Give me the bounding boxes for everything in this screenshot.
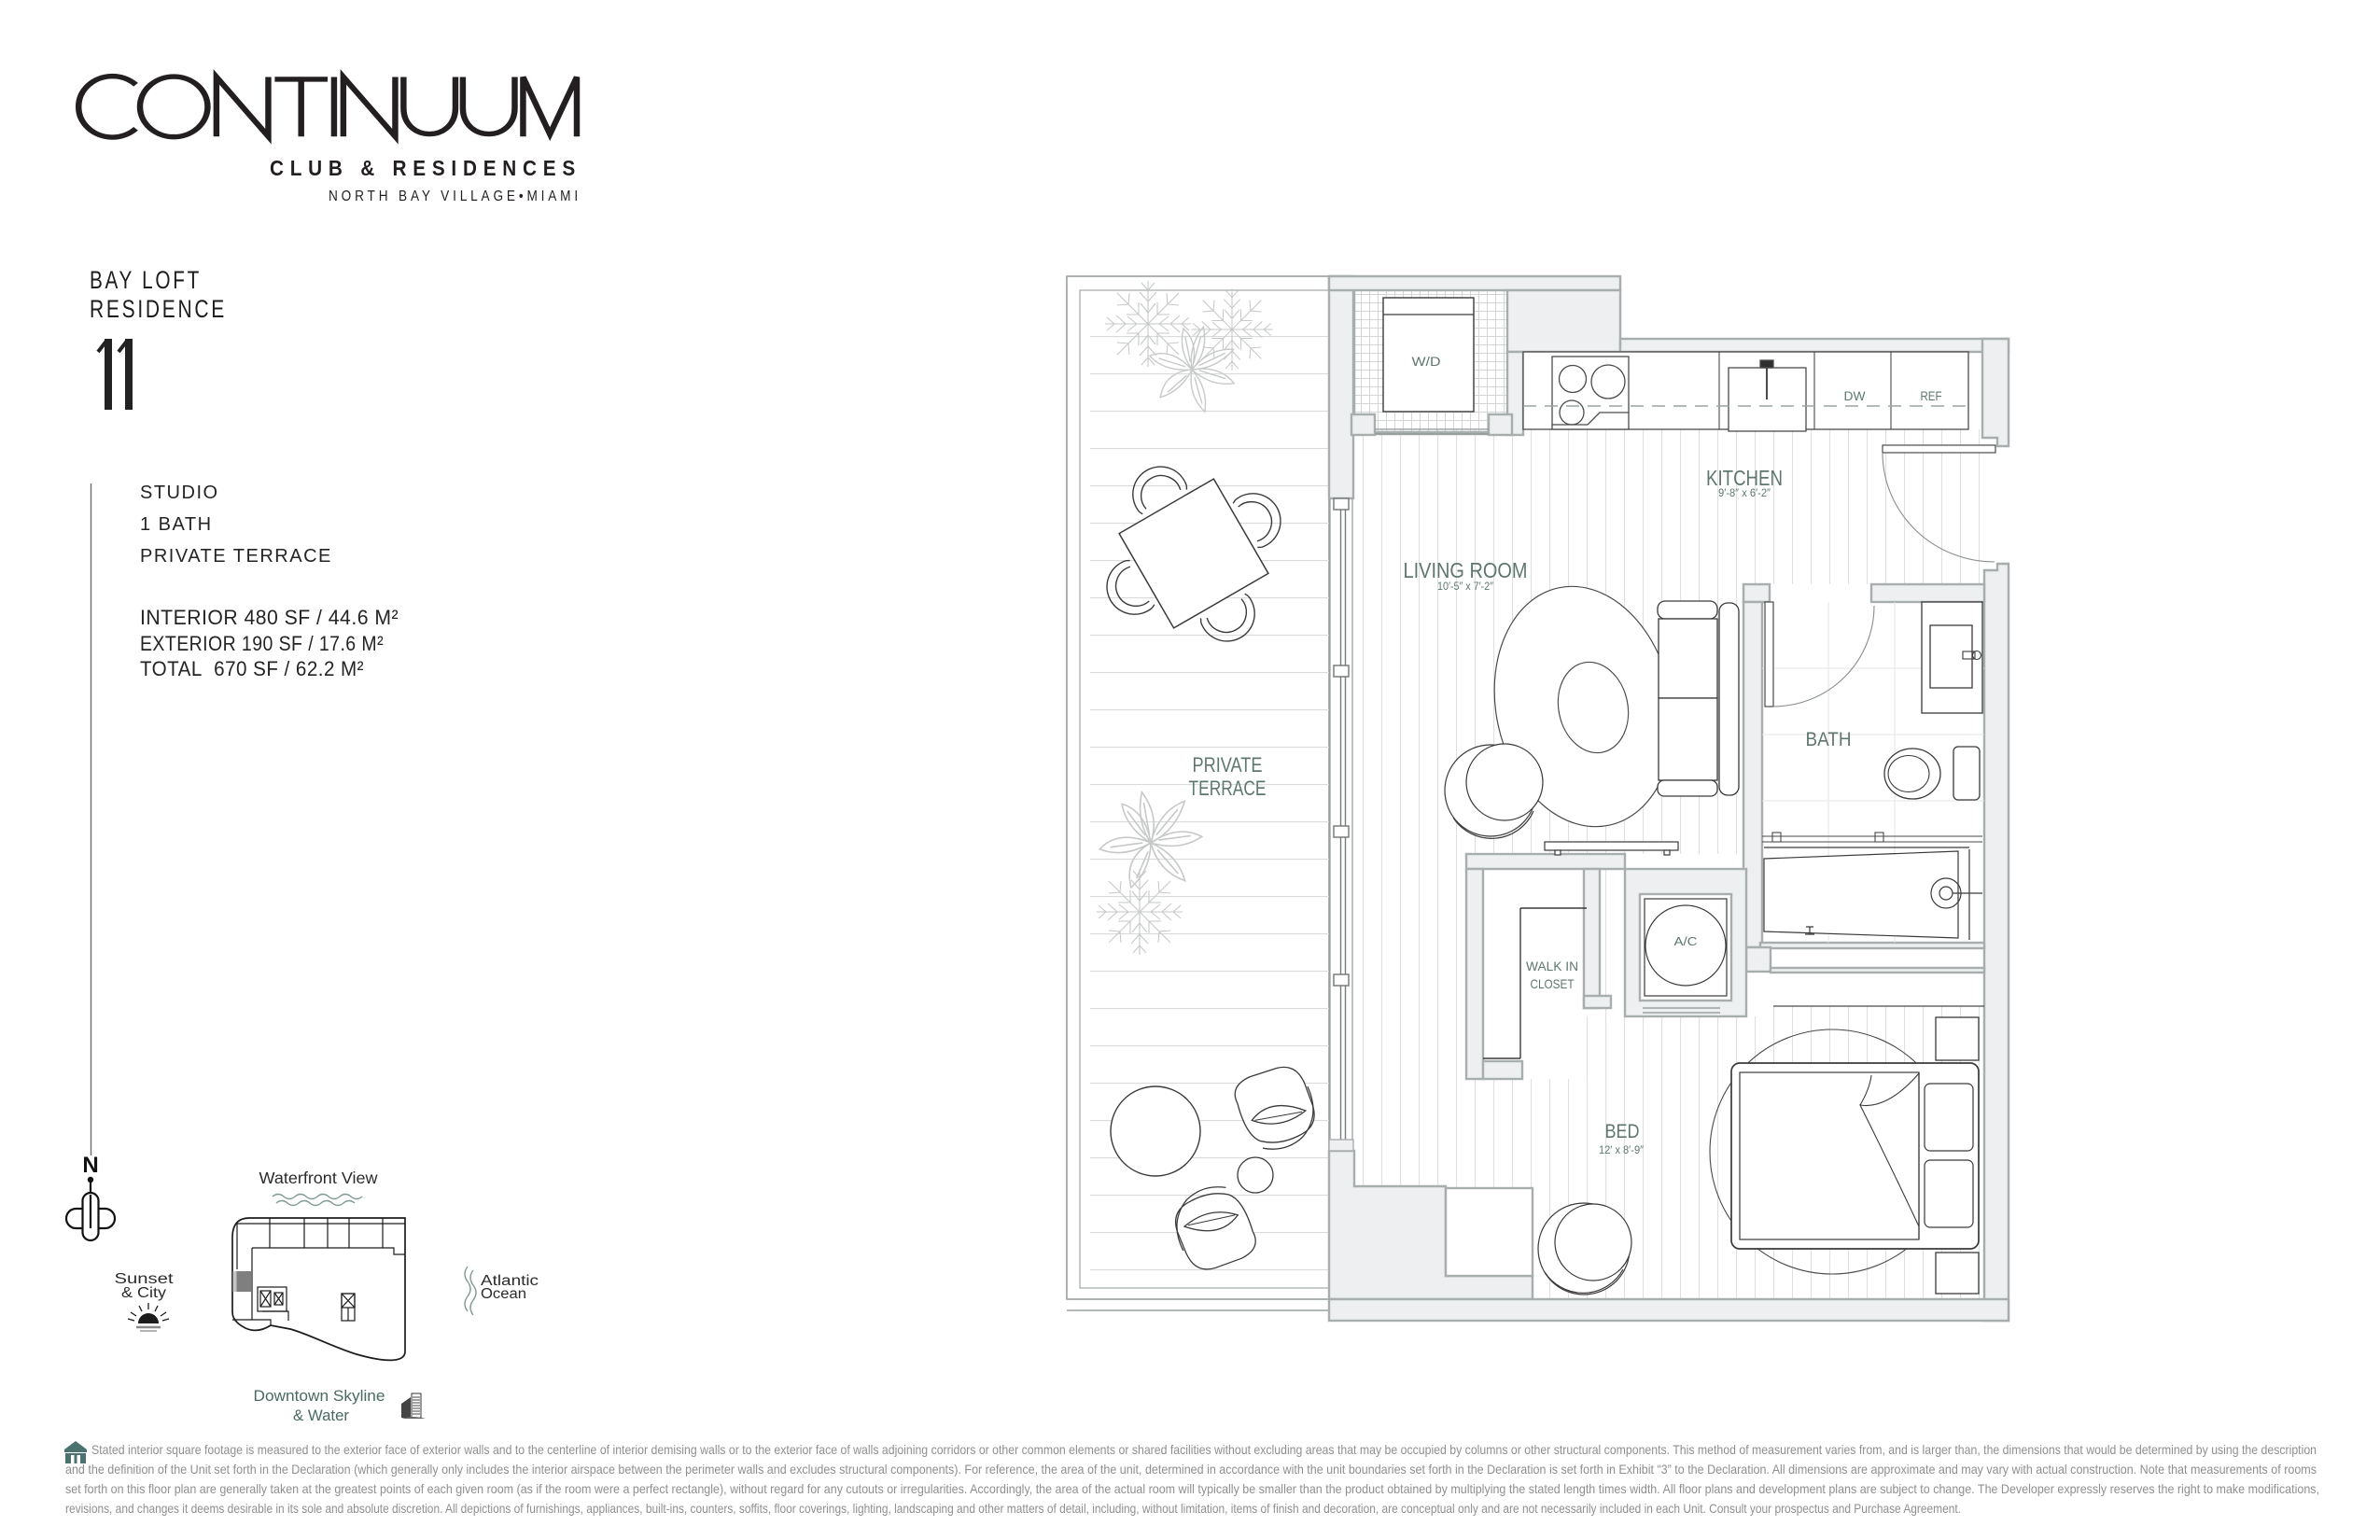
svg-text:BATH: BATH [1806,729,1852,750]
svg-text:and the definition of the Unit: and the definition of the Unit set forth… [65,1463,2317,1477]
svg-text:Waterfront View: Waterfront View [259,1169,378,1187]
svg-text:INTERIOR 480 SF / 44.6 M²: INTERIOR 480 SF / 44.6 M² [140,606,399,629]
svg-text:1 BATH: 1 BATH [140,514,213,535]
svg-text:CLOSET: CLOSET [1531,976,1575,991]
svg-text:Stated interior square footage: Stated interior square footage is measur… [91,1443,2317,1457]
svg-text:RESIDENCE: RESIDENCE [90,295,227,323]
svg-text:WALK IN: WALK IN [1526,959,1578,973]
svg-text:CLUB & RESIDENCES: CLUB & RESIDENCES [270,156,581,180]
svg-text:BED: BED [1605,1121,1640,1142]
svg-text:set forth on this floor plan a: set forth on this floor plan are general… [65,1482,2319,1496]
svg-text:STUDIO: STUDIO [140,483,219,503]
svg-text:BAY LOFT: BAY LOFT [90,266,202,294]
svg-text:NORTH BAY VILLAGE•MIAMI: NORTH BAY VILLAGE•MIAMI [329,189,581,204]
svg-text:N: N [82,1153,98,1178]
svg-text:Downtown Skyline: Downtown Skyline [254,1388,385,1405]
svg-text:TERRACE: TERRACE [1189,777,1267,800]
svg-text:W/D: W/D [1412,355,1441,369]
svg-text:12′ x 8′-9″: 12′ x 8′-9″ [1599,1143,1645,1156]
svg-text:& Water: & Water [293,1407,350,1424]
svg-text:TOTAL 670 SF / 62.2 M²: TOTAL 670 SF / 62.2 M² [140,657,364,680]
svg-text:REF: REF [1921,389,1942,403]
svg-text:EXTERIOR 190 SF / 17.6 M²: EXTERIOR 190 SF / 17.6 M² [140,632,384,655]
svg-text:A/C: A/C [1674,935,1698,948]
svg-text:DW: DW [1844,389,1866,403]
svg-text:9′-8″ x 6′-2″: 9′-8″ x 6′-2″ [1718,486,1771,499]
svg-text:Ocean: Ocean [481,1286,526,1302]
svg-text:10′-5″ x 7′-2″: 10′-5″ x 7′-2″ [1437,580,1494,593]
svg-text:revisions, and changes it deem: revisions, and changes it deems desirabl… [65,1502,1961,1516]
svg-text:& City: & City [121,1285,166,1301]
svg-text:PRIVATE TERRACE: PRIVATE TERRACE [140,546,332,567]
svg-text:PRIVATE: PRIVATE [1193,753,1263,777]
